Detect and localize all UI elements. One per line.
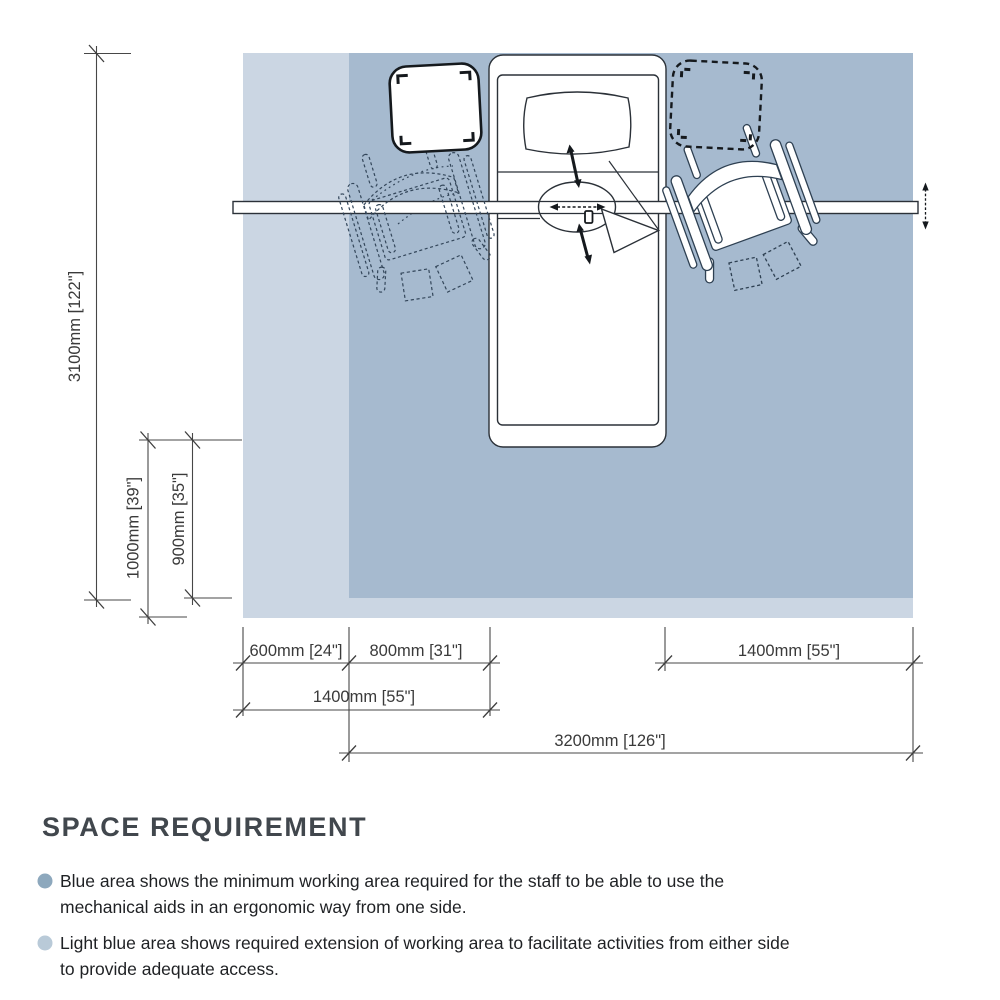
dim-extension-width: 600mm [24"] 800mm [31"] bbox=[233, 642, 500, 671]
hospital-bed bbox=[489, 55, 666, 447]
bullet-dot bbox=[38, 936, 53, 951]
dim-label-working-depth: 900mm [35"] bbox=[170, 473, 188, 566]
height-arrow-up-icon bbox=[922, 183, 928, 191]
dim-label-right-side-clearance: 1400mm [55"] bbox=[738, 642, 840, 660]
handset bbox=[585, 211, 593, 223]
dim-label-total-depth: 3100mm [122"] bbox=[66, 271, 84, 382]
bullet-dot-icon bbox=[37, 873, 53, 889]
bullet-dot bbox=[38, 874, 53, 889]
dim-left-total-width: 1400mm [55"] bbox=[233, 688, 500, 718]
legend-text: Blue area shows the minimum working area… bbox=[60, 868, 805, 920]
legend-item-working-area: Blue area shows the minimum working area… bbox=[37, 868, 807, 920]
rail-height-arrow bbox=[922, 183, 928, 230]
legend-text: Light blue area shows required extension… bbox=[60, 930, 805, 982]
legend-item-extension-area: Light blue area shows required extension… bbox=[37, 930, 807, 982]
dim-right-side-clearance: 1400mm [55"] bbox=[655, 642, 923, 671]
dim-label-left-total-width: 1400mm [55"] bbox=[313, 688, 415, 706]
bullet-dot-icon bbox=[37, 935, 53, 951]
dim-label-bed-side-clearance: 800mm [31"] bbox=[370, 642, 463, 660]
dim-total-depth: 3100mm [122"] bbox=[66, 45, 131, 609]
dim-working-depth: 900mm [35"] bbox=[170, 432, 232, 607]
pillow bbox=[524, 92, 631, 154]
lift-carriage bbox=[539, 182, 616, 232]
dim-label-extension-depth: 1000mm [39"] bbox=[125, 477, 143, 579]
height-arrow-down-icon bbox=[922, 222, 928, 230]
page-title: SPACE REQUIREMENT bbox=[42, 812, 367, 843]
dim-label-extension-width: 600mm [24"] bbox=[250, 642, 343, 660]
dim-total-width: 3200mm [126"] bbox=[339, 732, 923, 761]
dim-label-total-width: 3200mm [126"] bbox=[554, 732, 665, 750]
space-requirement-plan: 3100mm [122"] 1000mm [39"] 900mm [35"] 6… bbox=[0, 0, 1000, 800]
overbed-table-left bbox=[389, 63, 482, 154]
